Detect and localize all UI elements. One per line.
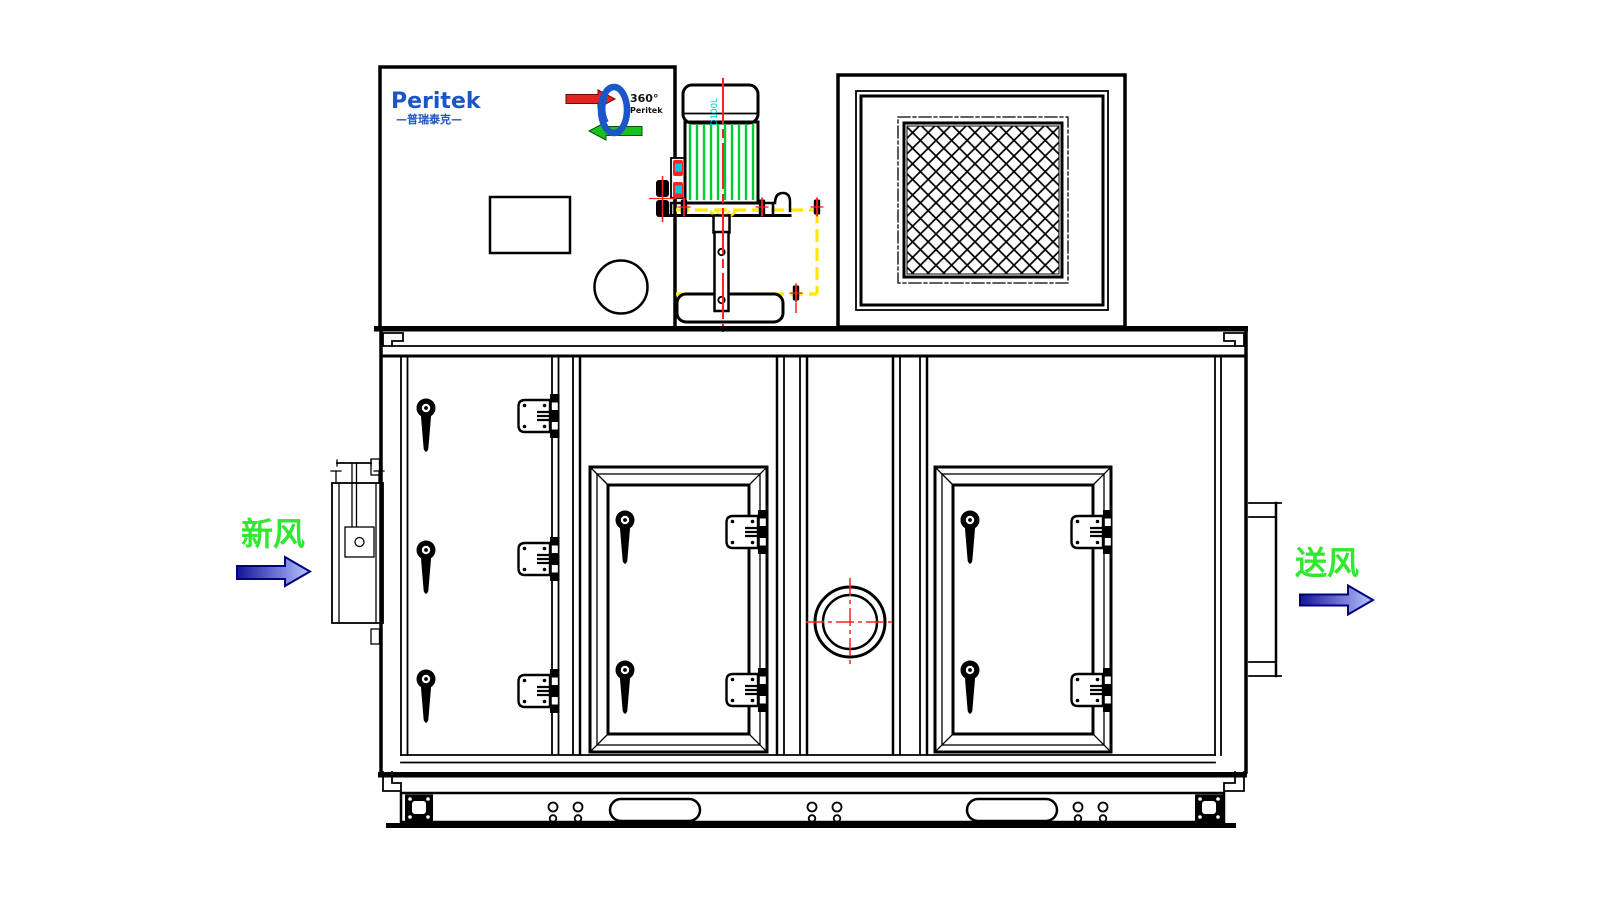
electrical-box (490, 197, 570, 253)
door-outer-frame (935, 467, 1111, 752)
bolt-marker-icon (790, 284, 803, 303)
door-latch-icon (519, 394, 560, 438)
door-handle-icon (417, 670, 436, 723)
ground-line (386, 823, 1236, 828)
door-handle-icon (616, 661, 635, 714)
forklift-slot (967, 799, 1057, 821)
cabinet-right-post (1215, 356, 1221, 755)
door-latch-icon (519, 669, 560, 713)
cabinet-roof-line (374, 326, 1248, 332)
drawing-canvas: Peritek —普瑞泰克— 360° Peritek (0, 0, 1613, 897)
corner-notch (383, 333, 403, 346)
cabinet-mullion (807, 357, 893, 754)
base-frame (386, 793, 1236, 828)
control-box: Peritek —普瑞泰克— 360° Peritek (380, 67, 685, 329)
corner-notch (1224, 333, 1244, 346)
mount-bracket (677, 294, 783, 322)
rotor-degrees-text: 360° (630, 92, 658, 105)
door-latch-icon (519, 537, 560, 581)
cabinet-left-post (401, 356, 408, 755)
phantom-outline (676, 210, 817, 294)
door-miter-lines (590, 467, 767, 752)
door-outer-frame (590, 467, 767, 752)
cabinet-floor-line (378, 772, 1247, 778)
clip-icon (673, 182, 683, 198)
inspection-door-right (935, 467, 1113, 752)
supply-air-arrow-icon (1300, 586, 1373, 615)
forklift-slot (610, 799, 700, 821)
brand-logo-subtext: —普瑞泰克— (396, 112, 462, 126)
cabinet-mullion (900, 357, 920, 754)
return-grille-box (838, 75, 1125, 327)
door-latch-icon (1072, 510, 1113, 554)
door-miter-lines (935, 467, 1111, 752)
duct-collar (371, 629, 380, 644)
bolt-marker-icon (678, 198, 691, 217)
door-handle-icon (417, 399, 436, 452)
shaft-column (715, 232, 729, 311)
sight-glass (806, 578, 894, 666)
supply-air-flange (1249, 503, 1281, 676)
motor-model-label: D100L (710, 98, 720, 126)
cabinet-mullion (784, 357, 800, 754)
rotor-360-logo: 360° Peritek (566, 87, 663, 140)
bracket-hook (775, 193, 790, 211)
door-handle-icon (961, 511, 980, 564)
door-handle-icon (417, 541, 436, 594)
filter-mesh (907, 126, 1059, 274)
bolt-marker-icon (811, 198, 824, 217)
lifting-bracket-right (1195, 795, 1223, 822)
damper-hooks (331, 471, 384, 483)
door-handle-icon (961, 661, 980, 714)
motor-cooling-fins (690, 124, 753, 200)
inspection-door-left (590, 467, 768, 752)
motor-cap (683, 85, 758, 123)
door-latch-icon (727, 668, 768, 712)
rotor-brand-text: Peritek (630, 106, 663, 115)
fresh-air-arrow-icon (237, 557, 310, 586)
wall-latch-clips (649, 160, 683, 222)
shaft-coupling (714, 216, 730, 233)
motor-assembly: D100L (665, 78, 824, 332)
anchor-bolt-holes (549, 803, 1108, 822)
door-handle-icon (616, 511, 635, 564)
flange-walls (1249, 517, 1276, 662)
door-latch-icon (727, 510, 768, 554)
centerline-crosshair (806, 578, 894, 666)
clip-icon (673, 160, 683, 176)
fresh-air-label: 新风 (241, 515, 305, 553)
supply-air-label: 送风 (1295, 544, 1359, 582)
pipe-port-circle (595, 261, 648, 314)
brand-logo-text: Peritek (391, 89, 482, 114)
access-panel (417, 394, 560, 723)
cabinet-body (374, 326, 1248, 791)
duct-collar (371, 459, 380, 475)
rotor-wheel-hub-icon (604, 98, 607, 122)
damper-actuator (345, 527, 374, 557)
cad-drawing: Peritek —普瑞泰克— 360° Peritek (0, 0, 1613, 897)
fresh-air-damper-box (331, 459, 384, 644)
damper-rod (352, 464, 357, 527)
door-latch-icon (1072, 668, 1113, 712)
lifting-bracket-left (405, 795, 433, 822)
